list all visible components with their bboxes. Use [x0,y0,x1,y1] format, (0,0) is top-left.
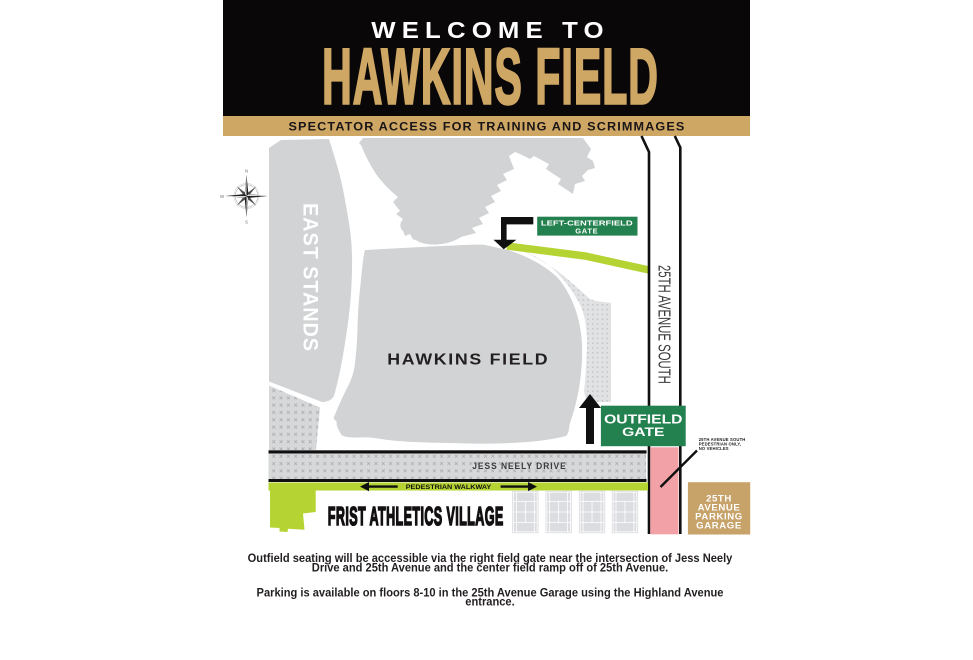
svg-text:FRIST ATHLETICS VILLAGE: FRIST ATHLETICS VILLAGE [328,503,504,531]
svg-text:GATE: GATE [575,227,598,236]
svg-text:PEDESTRIAN WALKWAY: PEDESTRIAN WALKWAY [406,484,493,491]
svg-text:S: S [245,220,248,225]
svg-text:NO VEHICLES: NO VEHICLES [699,446,729,451]
svg-text:N: N [245,169,248,174]
svg-text:HAWKINS FIELD: HAWKINS FIELD [387,352,549,369]
svg-text:GATE: GATE [622,425,664,439]
svg-text:entrance.: entrance. [465,596,514,608]
svg-text:JESS NEELY DRIVE: JESS NEELY DRIVE [472,461,566,471]
svg-text:GARAGE: GARAGE [696,521,742,532]
svg-text:W: W [220,194,225,199]
svg-text:EAST STANDS: EAST STANDS [298,203,322,352]
svg-text:HAWKINS FIELD: HAWKINS FIELD [322,33,659,121]
svg-text:25TH AVENUE SOUTH: 25TH AVENUE SOUTH [654,265,674,384]
svg-text:Drive and 25th Avenue and the: Drive and 25th Avenue and the center fie… [312,562,668,574]
svg-text:SPECTATOR ACCESS FOR TRAINING: SPECTATOR ACCESS FOR TRAINING AND SCRIMM… [289,120,686,134]
